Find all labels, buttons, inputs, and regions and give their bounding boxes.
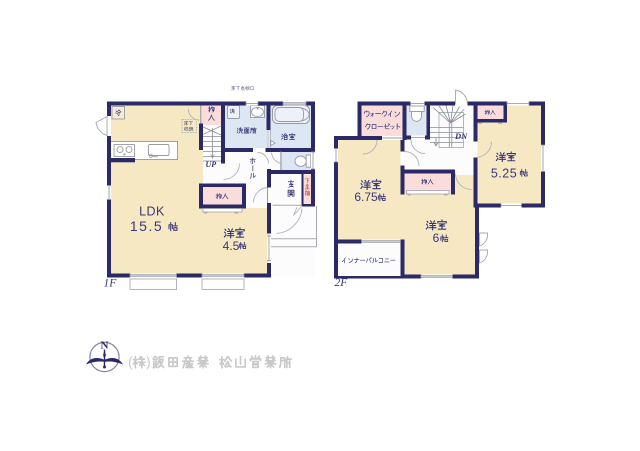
- svg-text:LDK: LDK: [139, 205, 165, 219]
- svg-text:1F: 1F: [104, 278, 118, 290]
- svg-text:(: (: [128, 354, 133, 370]
- svg-text:5.25: 5.25: [491, 167, 517, 181]
- svg-text:6: 6: [433, 231, 440, 245]
- svg-text:6.75: 6.75: [354, 190, 378, 204]
- svg-text:UP: UP: [206, 160, 217, 169]
- svg-text:): ): [146, 354, 151, 370]
- svg-text:2F: 2F: [335, 277, 349, 289]
- svg-text:15.5: 15.5: [130, 218, 163, 234]
- svg-text:DN: DN: [454, 131, 468, 141]
- svg-text:4.5: 4.5: [223, 239, 240, 253]
